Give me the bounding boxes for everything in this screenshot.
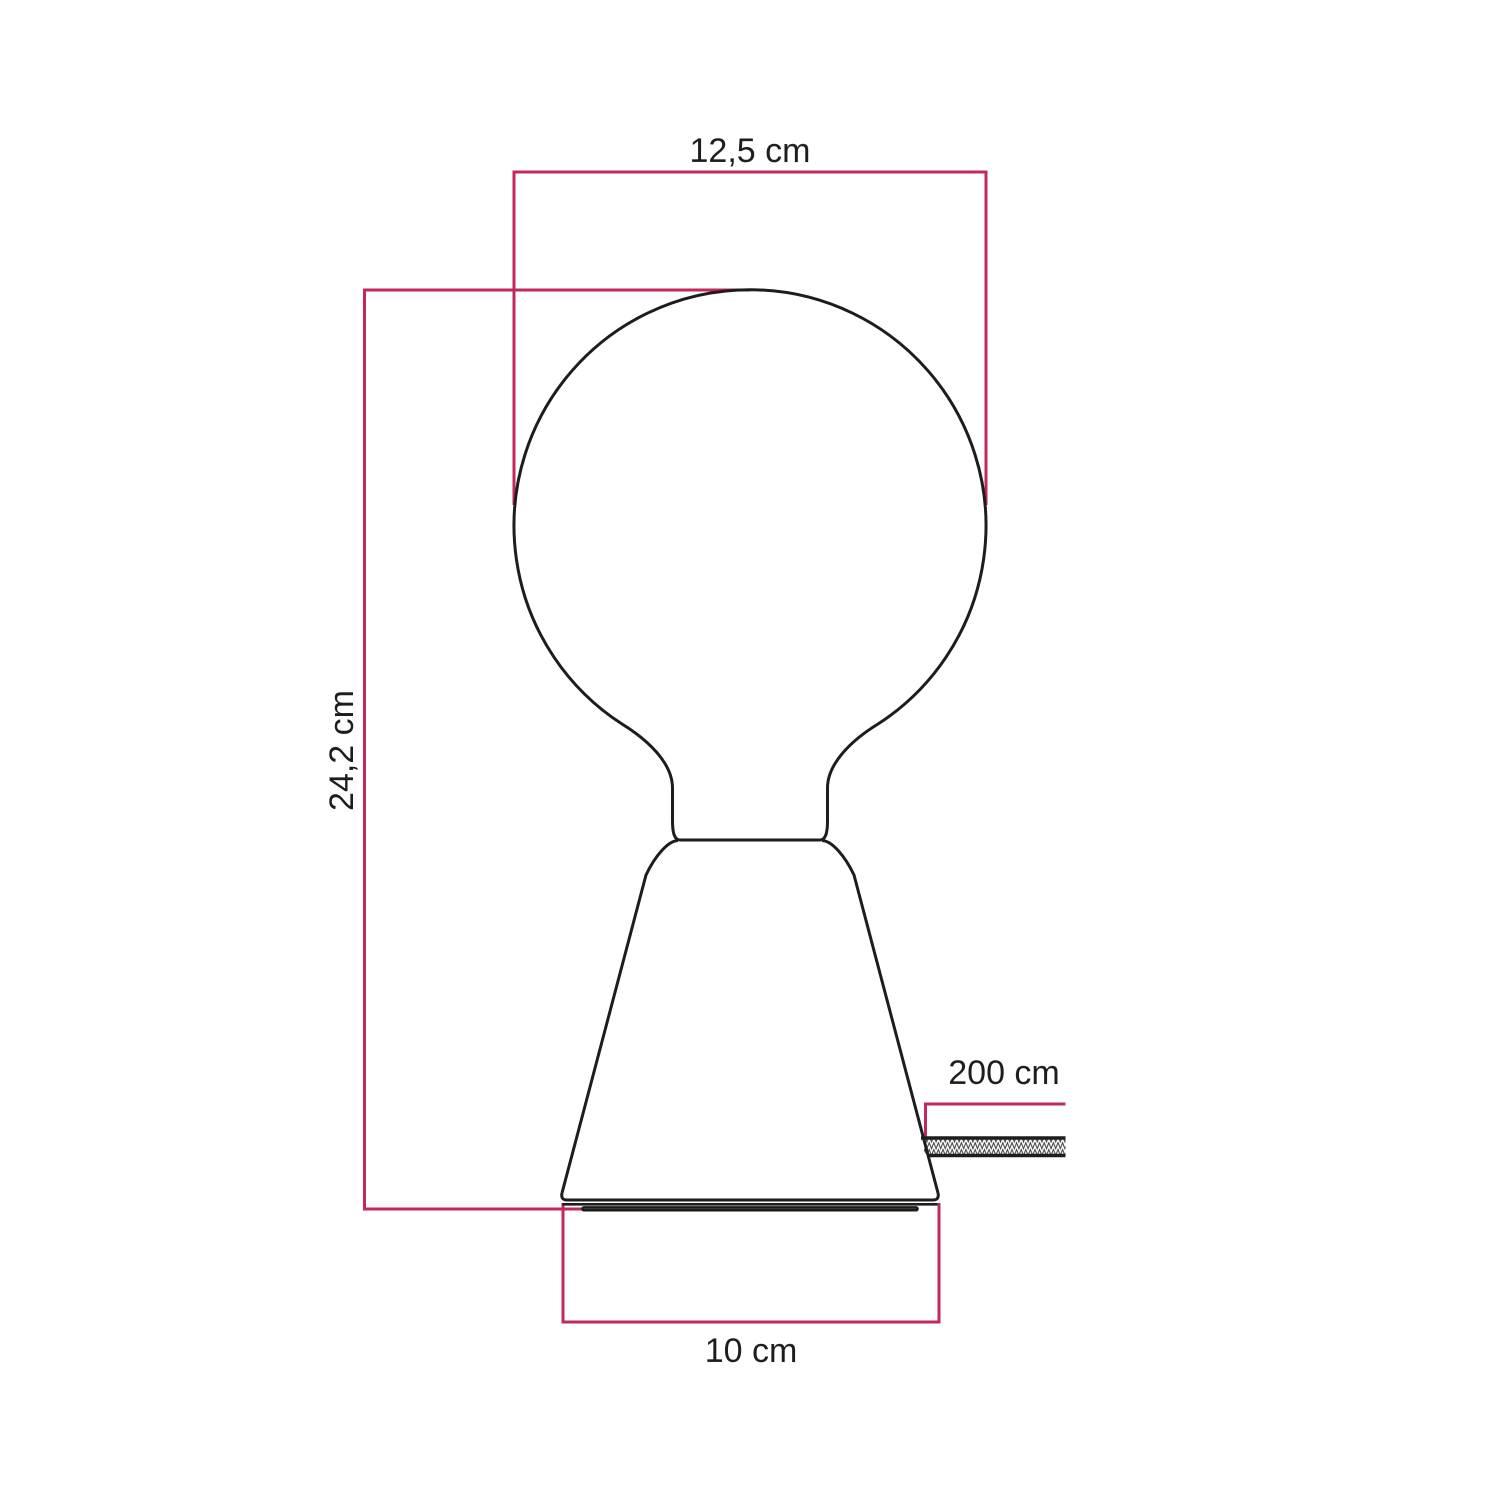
svg-text:24,2 cm: 24,2 cm: [323, 690, 361, 811]
svg-text:12,5 cm: 12,5 cm: [690, 132, 811, 170]
svg-text:200 cm: 200 cm: [948, 1054, 1060, 1092]
svg-text:10 cm: 10 cm: [705, 1332, 798, 1370]
